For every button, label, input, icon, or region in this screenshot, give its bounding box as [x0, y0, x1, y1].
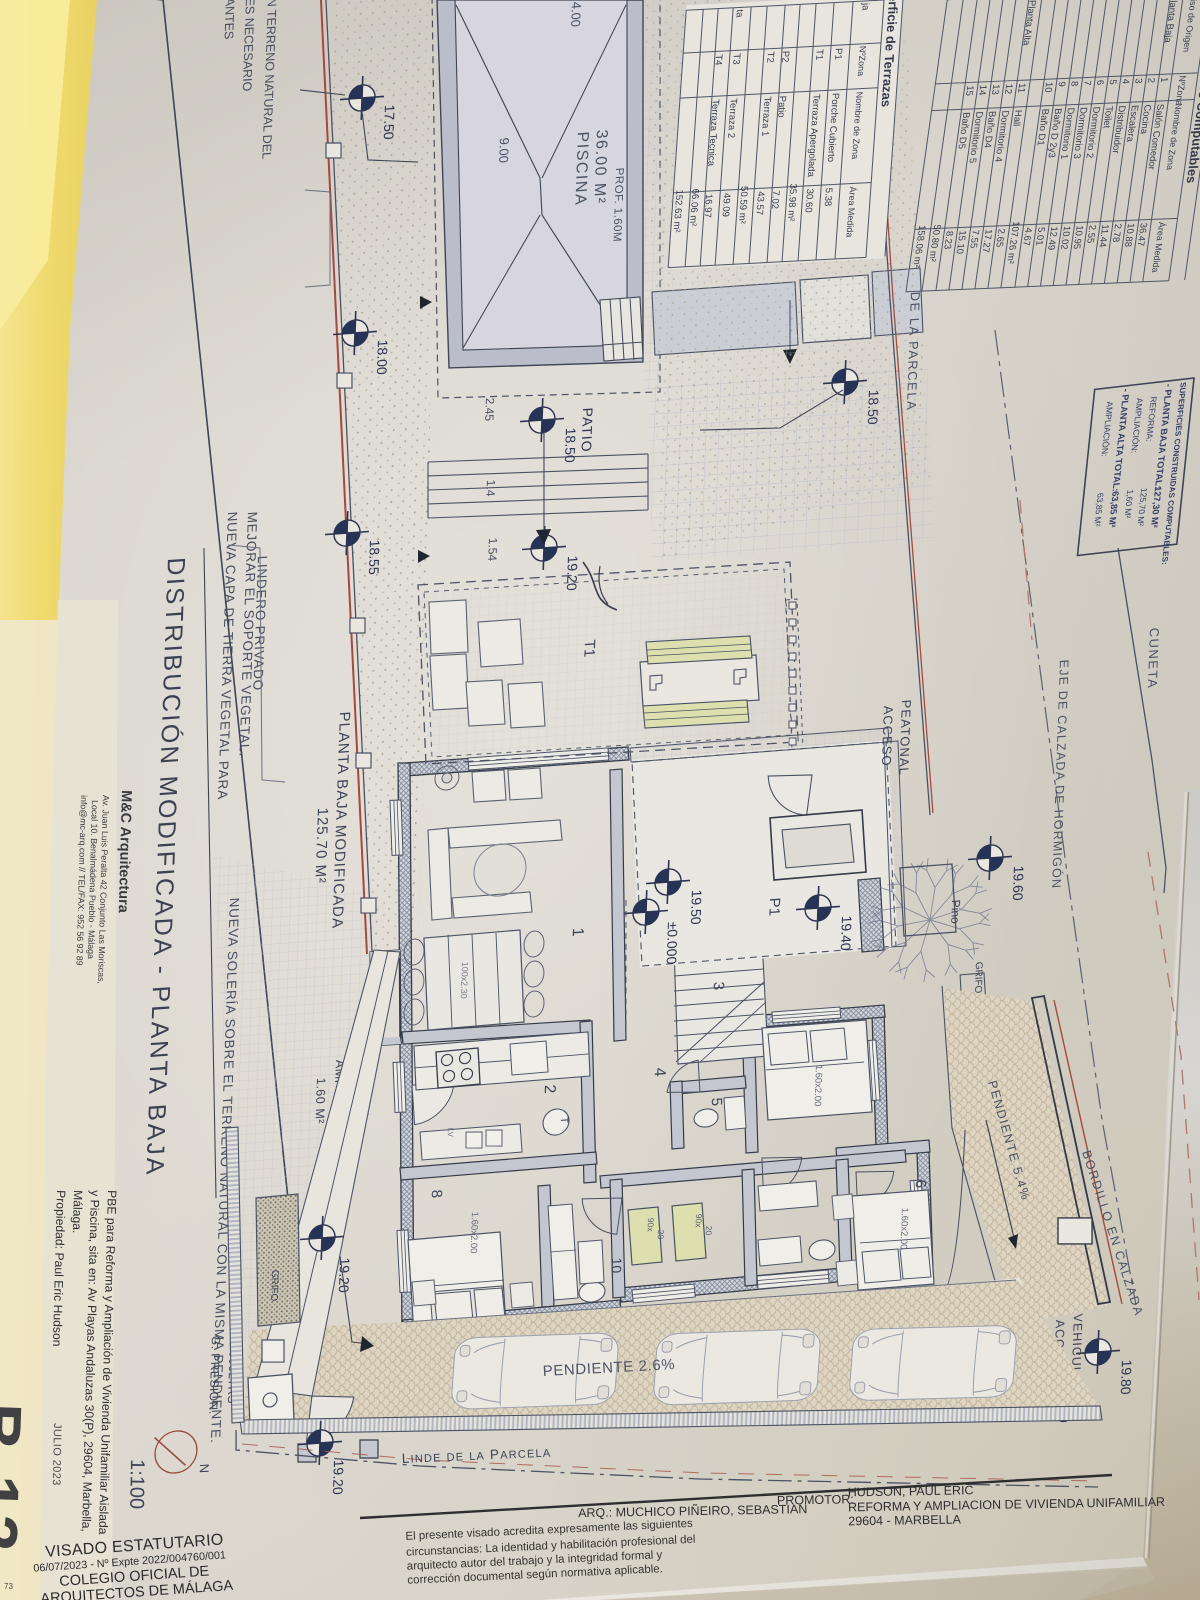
svg-text:HUDSON, PAUL ERIC: HUDSON, PAUL ERIC — [848, 1483, 974, 1499]
svg-text:PATIO: PATIO — [578, 407, 596, 453]
svg-text:100x2.30: 100x2.30 — [459, 961, 470, 999]
svg-text:18.50: 18.50 — [865, 389, 882, 425]
svg-text:5.38: 5.38 — [822, 187, 834, 206]
svg-text:P1: P1 — [832, 48, 844, 60]
svg-text:9: 9 — [1055, 81, 1067, 87]
svg-text:8: 8 — [428, 1189, 445, 1199]
svg-text:T3: T3 — [730, 53, 742, 65]
svg-text:PEATONAL: PEATONAL — [896, 699, 914, 776]
svg-text:T1: T1 — [813, 49, 825, 61]
svg-text:GRIFO: GRIFO — [268, 1269, 280, 1302]
svg-text:9.00: 9.00 — [496, 137, 512, 163]
svg-text:1.60x2.00: 1.60x2.00 — [812, 1064, 824, 1106]
svg-text:13: 13 — [989, 84, 1001, 95]
svg-text:3: 3 — [1132, 78, 1144, 84]
svg-text:PISCINA: PISCINA — [571, 131, 591, 207]
svg-text:30.60: 30.60 — [802, 188, 815, 213]
svg-text:4: 4 — [651, 1067, 668, 1077]
svg-text:1.60x2.00: 1.60x2.00 — [898, 1207, 910, 1249]
svg-text:T: T — [558, 1116, 570, 1124]
svg-text:6: 6 — [1094, 80, 1106, 86]
svg-text:CUNETA: CUNETA — [1145, 627, 1162, 689]
svg-text:Pino: Pino — [948, 899, 963, 924]
svg-text:1:100: 1:100 — [125, 1459, 148, 1509]
svg-text:10: 10 — [608, 1257, 625, 1274]
svg-text:1.60x2.00: 1.60x2.00 — [468, 1211, 480, 1253]
svg-text:20: 20 — [704, 1225, 714, 1235]
svg-text:43.57: 43.57 — [753, 191, 766, 216]
svg-text:5: 5 — [1107, 79, 1119, 85]
svg-text:JULIO 2023: JULIO 2023 — [50, 1423, 63, 1486]
svg-text:15: 15 — [963, 85, 975, 96]
svg-text:19.20: 19.20 — [330, 1459, 347, 1495]
svg-text:10: 10 — [1042, 82, 1054, 93]
svg-text:B 13: B 13 — [0, 1402, 36, 1556]
svg-text:18.00: 18.00 — [374, 339, 391, 375]
svg-text:6: 6 — [912, 1179, 929, 1189]
svg-text:±0.000: ±0.000 — [664, 921, 681, 965]
svg-text:7: 7 — [1081, 80, 1093, 86]
svg-text:G. PRESIÓN.: G. PRESIÓN. — [206, 1335, 224, 1415]
svg-text:1.4: 1.4 — [483, 479, 498, 497]
svg-text:M&C Arquitectura: M&C Arquitectura — [115, 790, 134, 914]
svg-text:73: 73 — [4, 1582, 13, 1591]
svg-text:125.70 M²: 125.70 M² — [311, 807, 331, 885]
svg-text:8: 8 — [1068, 81, 1080, 87]
svg-text:P2: P2 — [779, 51, 791, 63]
svg-text:Málaga.: Málaga. — [70, 1190, 85, 1234]
svg-text:2: 2 — [1145, 78, 1157, 84]
svg-text:14: 14 — [976, 85, 989, 97]
svg-text:16.97: 16.97 — [701, 194, 714, 219]
svg-text:11: 11 — [1015, 83, 1027, 93]
svg-text:4.00: 4.00 — [568, 1, 584, 27]
svg-text:ACCESO: ACCESO — [879, 705, 896, 767]
svg-text:36.00 M²: 36.00 M² — [590, 129, 610, 205]
svg-text:90x: 90x — [694, 1213, 704, 1228]
svg-text:19.50: 19.50 — [688, 889, 705, 925]
svg-text:19.80: 19.80 — [1118, 1359, 1135, 1395]
svg-text:3: 3 — [710, 981, 727, 991]
svg-text:2: 2 — [541, 1084, 558, 1094]
svg-text:LV: LV — [446, 1128, 455, 1138]
svg-text:ja: ja — [859, 2, 871, 12]
svg-text:20: 20 — [656, 1229, 666, 1239]
svg-text:12: 12 — [1002, 83, 1014, 94]
svg-text:1: 1 — [569, 927, 586, 937]
svg-text:T2: T2 — [764, 51, 776, 63]
svg-text:90x: 90x — [646, 1217, 656, 1232]
svg-text:1.54: 1.54 — [485, 537, 500, 562]
svg-text:1: 1 — [1158, 77, 1170, 83]
svg-text:18.55: 18.55 — [366, 539, 383, 575]
svg-text:N: N — [197, 1463, 212, 1473]
svg-text:2.45: 2.45 — [482, 397, 497, 422]
svg-text:19.60: 19.60 — [1010, 865, 1027, 901]
svg-text:ANTES: ANTES — [222, 0, 237, 40]
svg-text:7.02: 7.02 — [769, 190, 781, 209]
svg-text:T4: T4 — [712, 54, 724, 66]
svg-text:Patio: Patio — [775, 95, 788, 117]
svg-text:18.50: 18.50 — [562, 427, 579, 463]
svg-text:P1: P1 — [765, 897, 783, 916]
svg-text:5: 5 — [708, 1097, 725, 1107]
svg-text:GRIFO: GRIFO — [972, 961, 984, 994]
svg-text:19.40: 19.40 — [838, 915, 855, 951]
svg-text:49.09: 49.09 — [719, 193, 732, 218]
svg-text:29604 - MARBELLA: 29604 - MARBELLA — [848, 1512, 961, 1528]
svg-text:PROMOTOR:: PROMOTOR: — [777, 1492, 854, 1507]
svg-text:1.60 M²: 1.60 M² — [312, 1077, 328, 1124]
svg-text:ta: ta — [733, 9, 745, 18]
svg-text:17.50: 17.50 — [381, 104, 398, 140]
svg-text:T1: T1 — [580, 639, 598, 658]
